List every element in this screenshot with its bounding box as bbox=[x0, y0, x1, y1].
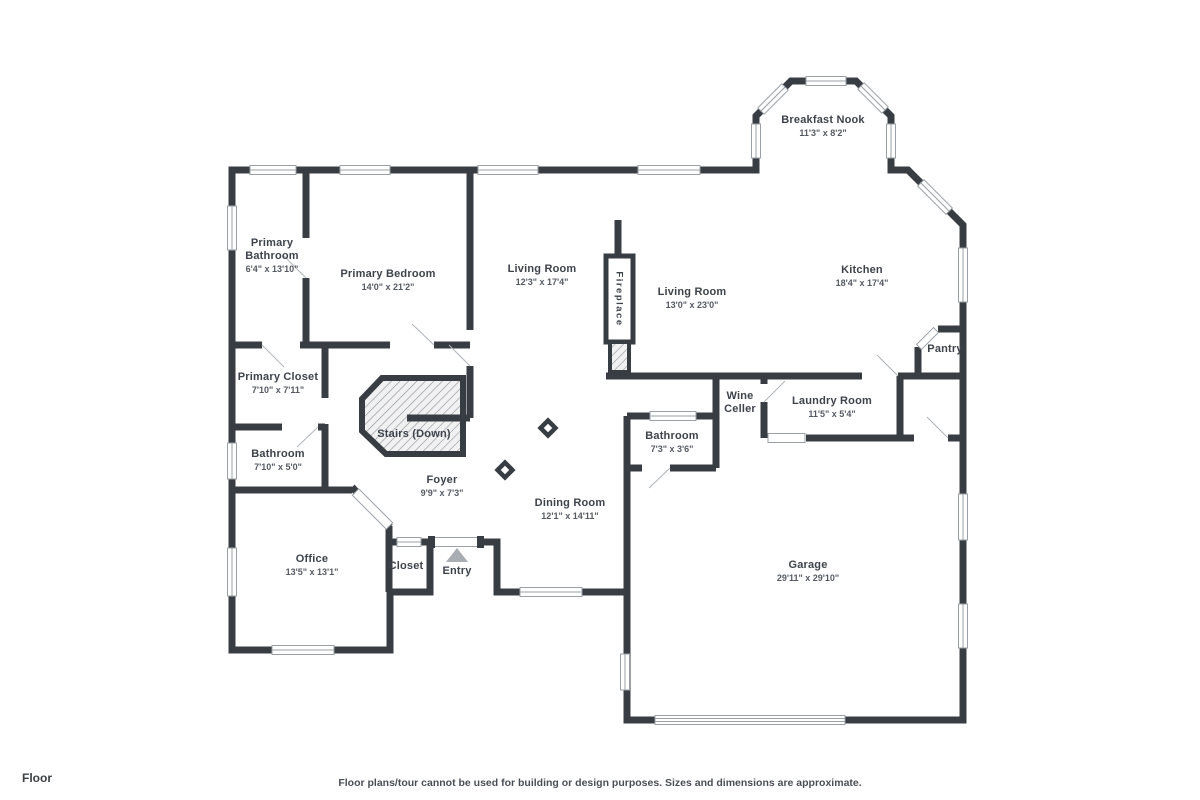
room-label-primary-closet: Primary Closet 7'10" x 7'11" bbox=[238, 371, 318, 395]
room-label-laundry-room: Laundry Room 11'5" x 5'4" bbox=[792, 395, 872, 419]
room-label-fireplace: Fireplace bbox=[614, 271, 625, 326]
room-label-primary-bedroom: Primary Bedroom 14'0" x 21'2" bbox=[340, 268, 435, 292]
room-label-office: Office 13'5" x 13'1" bbox=[286, 553, 339, 577]
column-markers bbox=[494, 417, 558, 480]
room-label-wine-celler: Wine Celler bbox=[716, 390, 764, 416]
room-label-garage: Garage 29'11" x 29'10" bbox=[777, 559, 839, 583]
floor-plan-drawing bbox=[0, 0, 1200, 800]
interior-walls bbox=[232, 170, 963, 720]
room-label-primary-bathroom: Primary Bathroom 6'4" x 13'10" bbox=[232, 237, 312, 274]
room-label-living-room-west: Living Room 12'3" x 17'4" bbox=[508, 263, 577, 287]
room-label-living-room-east: Living Room 13'0" x 23'0" bbox=[658, 286, 727, 310]
entry-direction-triangle-icon bbox=[446, 548, 468, 562]
stairs-hatch bbox=[362, 378, 470, 454]
front-door bbox=[428, 536, 484, 548]
room-label-breakfast-nook: Breakfast Nook 11'3" x 8'2" bbox=[781, 114, 865, 138]
room-label-entry: Entry bbox=[442, 565, 471, 578]
floor-plan-page: Breakfast Nook 11'3" x 8'2" Primary Bath… bbox=[0, 0, 1200, 800]
room-label-closet: Closet bbox=[389, 560, 424, 573]
room-label-stairs: Stairs (Down) bbox=[377, 428, 451, 441]
disclaimer-text: Floor plans/tour cannot be used for buil… bbox=[0, 777, 1200, 789]
room-label-kitchen: Kitchen 18'4" x 17'4" bbox=[836, 264, 889, 288]
room-label-bathroom-main: Bathroom 7'10" x 5'0" bbox=[251, 448, 305, 472]
garage-door bbox=[655, 716, 845, 725]
room-label-bathroom-garage: Bathroom 7'3" x 3'6" bbox=[645, 430, 699, 454]
room-label-foyer: Foyer 9'9" x 7'3" bbox=[421, 474, 464, 498]
room-label-dining-room: Dining Room 12'1" x 14'11" bbox=[535, 497, 606, 521]
room-label-pantry: Pantry bbox=[927, 343, 962, 356]
